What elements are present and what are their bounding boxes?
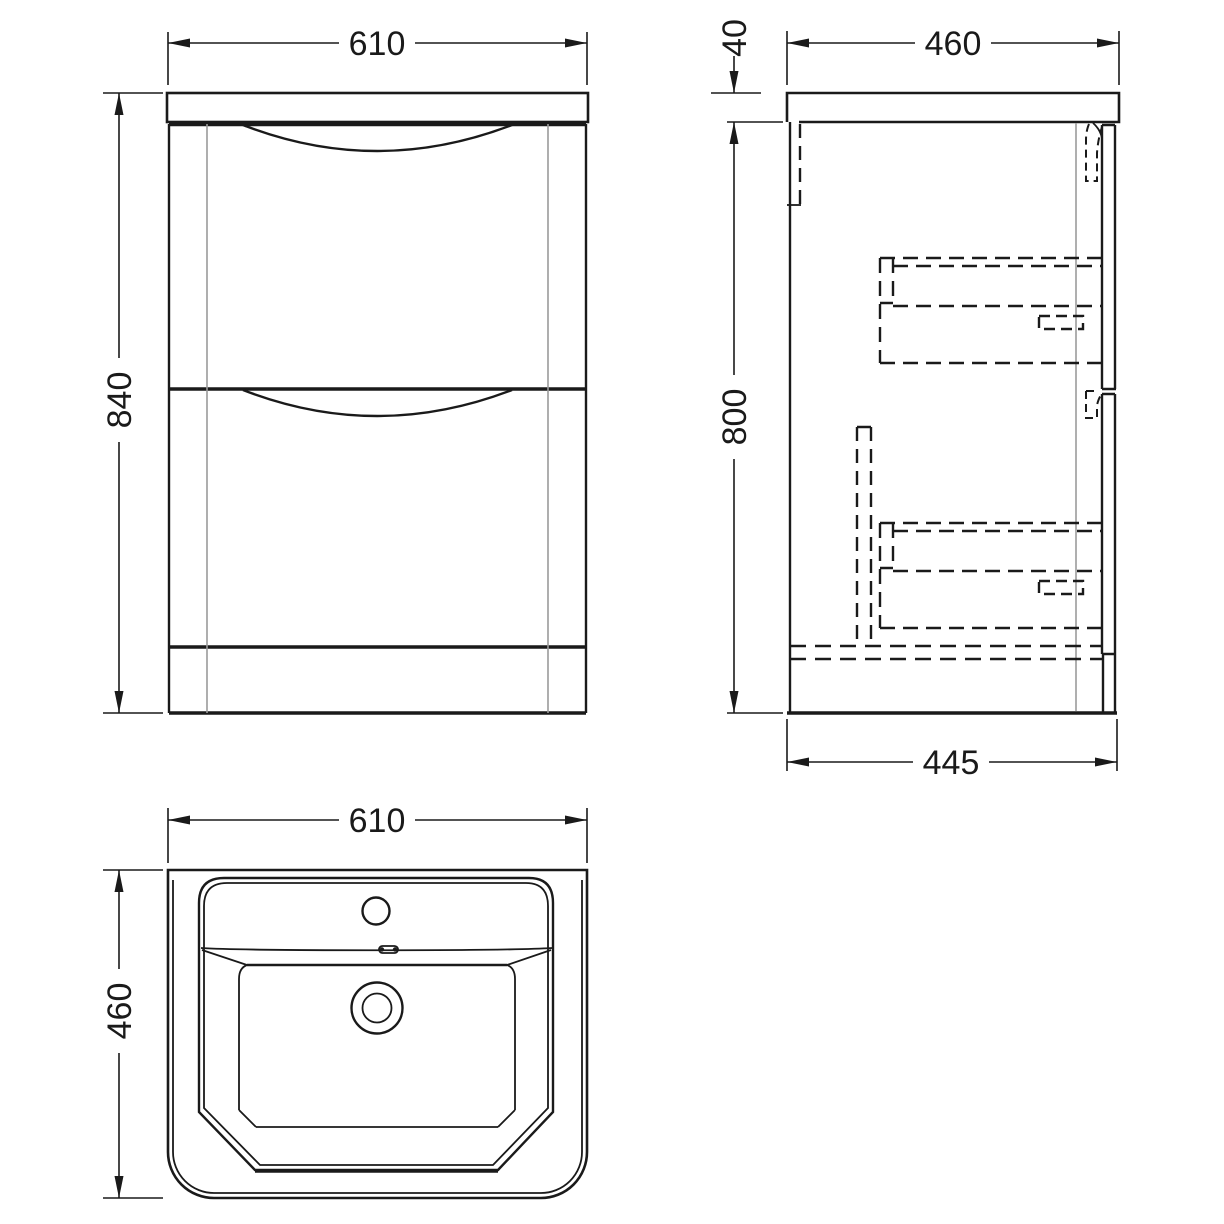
front-width-dimension: 610 — [168, 25, 587, 85]
plan-view: 610 460 — [101, 802, 587, 1198]
front-view: 610 840 — [101, 25, 588, 713]
arrow-down-icon — [115, 1176, 124, 1198]
arrow-up-icon — [115, 93, 124, 115]
arrow-left-icon — [168, 39, 190, 48]
side-lower-drawer-box-hidden — [880, 523, 1102, 628]
front-drawer1-handle-arc — [243, 125, 512, 151]
dim-front-width-label: 610 — [349, 25, 406, 63]
plan-bowl-side-walls — [239, 965, 515, 1110]
side-thickness-ticks — [711, 93, 783, 122]
plan-width-dimension: 610 — [168, 802, 587, 863]
plan-back-ledge-line — [201, 948, 552, 950]
plan-overflow-dot-left — [380, 947, 384, 951]
side-hidden-standpipe — [857, 427, 871, 646]
dim-side-thickness-label: 40 — [716, 19, 754, 57]
arrow-down-icon — [730, 691, 739, 713]
dim-side-base-depth-label: 445 — [923, 744, 980, 782]
arrow-left-icon — [787, 39, 809, 48]
dim-plan-depth-label: 460 — [101, 983, 139, 1040]
arrow-right-icon — [565, 816, 587, 825]
technical-drawing-page: 610 840 — [0, 0, 1224, 1224]
side-countertop — [787, 93, 1119, 122]
side-lower-drawer-front — [1102, 394, 1116, 654]
side-upper-drawer-box-lines — [880, 258, 1102, 363]
plan-drain-outer — [352, 983, 403, 1034]
side-depth-dimension: 460 — [787, 25, 1119, 85]
arrow-right-icon — [1097, 39, 1119, 48]
front-drawer2-handle-arc — [243, 390, 512, 416]
front-cabinet-sides — [169, 124, 586, 713]
plan-tap-hole — [363, 898, 390, 925]
side-counter-thickness-dimension: 40 — [711, 19, 783, 144]
dim-side-height-label: 800 — [716, 389, 754, 446]
arrow-left-icon — [787, 758, 809, 767]
side-front-plinth-post — [1103, 654, 1115, 713]
arrow-up-icon — [115, 870, 124, 892]
dim-front-height-label: 840 — [101, 372, 139, 429]
dim-side-depth-label: 460 — [925, 25, 982, 63]
side-view: 460 40 800 445 — [711, 19, 1119, 782]
plan-drain-inner — [363, 994, 392, 1023]
front-height-dimension: 840 — [101, 93, 163, 713]
side-lower-drawer-box-lines — [880, 523, 1102, 628]
plan-ledge-corner-slopes — [202, 950, 551, 965]
plan-overflow-dot-right — [393, 947, 397, 951]
technical-drawing-canvas: 610 840 — [0, 0, 1224, 1224]
front-construction-lines — [207, 124, 548, 713]
arrow-right-icon — [1095, 758, 1117, 767]
side-height-dimension: 800 — [716, 122, 783, 713]
arrow-down-icon — [730, 71, 739, 93]
plan-depth-dimension: 460 — [101, 870, 163, 1198]
front-countertop — [167, 93, 588, 122]
side-hidden-bottom-board — [790, 646, 1102, 659]
dim-plan-width-label: 610 — [349, 802, 406, 840]
side-upper-drawer-front — [1102, 125, 1116, 389]
plan-bowl-bottom-chamfers — [239, 1110, 515, 1127]
arrow-down-icon — [115, 691, 124, 713]
side-base-depth-dimension: 445 — [787, 719, 1117, 782]
side-upper-drawer-box-hidden — [880, 258, 1102, 363]
arrow-right-icon — [565, 39, 587, 48]
side-lower-handle-recess-hidden — [1086, 391, 1102, 418]
arrow-left-icon — [168, 816, 190, 825]
